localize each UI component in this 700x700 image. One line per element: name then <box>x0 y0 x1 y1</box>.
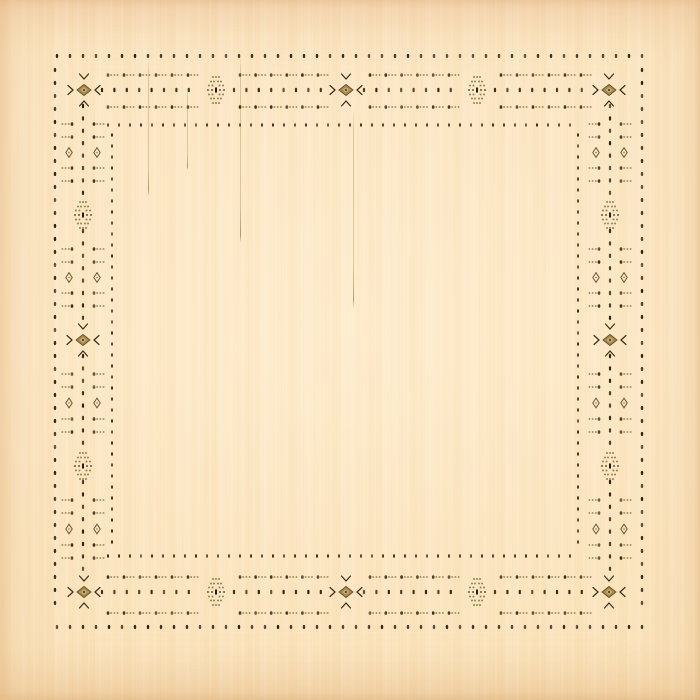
stitch <box>272 123 274 126</box>
stitch <box>123 611 126 615</box>
stitch <box>142 74 144 76</box>
stitch <box>641 549 643 553</box>
stitch <box>283 590 285 594</box>
stitch <box>68 544 70 546</box>
stitch <box>605 465 607 467</box>
stitch <box>558 74 560 76</box>
stitch <box>592 386 594 388</box>
stitch <box>595 152 596 153</box>
stitch <box>54 315 56 319</box>
stitch <box>103 180 105 182</box>
stitch <box>451 612 453 614</box>
stitch <box>301 105 304 109</box>
stitch <box>595 180 597 182</box>
stitch <box>215 102 217 104</box>
stitch <box>404 106 406 108</box>
stitch <box>117 106 119 108</box>
stitch <box>616 461 618 463</box>
stitch <box>305 554 307 557</box>
stitch <box>138 590 140 594</box>
stitch <box>623 544 625 546</box>
stitch <box>187 73 190 77</box>
stitch <box>187 105 190 109</box>
stitch <box>316 625 318 629</box>
stitch <box>123 73 126 77</box>
stitch <box>506 106 508 108</box>
stitch <box>368 625 370 629</box>
stitch <box>468 591 470 593</box>
stitch <box>190 576 192 578</box>
stitch <box>641 458 643 462</box>
stitch <box>522 576 524 578</box>
stitch <box>151 123 153 126</box>
stitch <box>626 167 628 169</box>
stitch <box>161 74 163 76</box>
stitch <box>264 106 266 108</box>
stitch <box>65 512 67 514</box>
stitch <box>68 402 69 403</box>
stitch <box>558 576 560 578</box>
stitch <box>580 575 583 579</box>
stitch <box>96 499 98 501</box>
stitch <box>630 499 632 501</box>
stitch <box>113 590 115 594</box>
stitch <box>258 590 260 594</box>
stitch <box>71 556 74 560</box>
stitch <box>111 419 113 422</box>
stitch <box>590 106 592 108</box>
stitch <box>592 418 594 420</box>
stitch <box>641 172 643 176</box>
stitch <box>220 81 222 83</box>
stitch <box>588 418 590 420</box>
stitch <box>103 544 105 546</box>
stitch <box>270 575 273 579</box>
stitch <box>407 74 409 76</box>
stitch <box>641 562 643 566</box>
stitch <box>416 611 419 615</box>
stitch <box>641 54 643 58</box>
stitch <box>595 373 597 375</box>
stitch <box>473 94 475 96</box>
stitch <box>99 123 101 125</box>
stitch <box>82 505 84 509</box>
stitch <box>510 74 512 76</box>
stitch <box>522 74 524 76</box>
stitch <box>577 232 579 235</box>
stitch <box>162 554 164 557</box>
stitch <box>626 248 628 250</box>
stitch <box>82 428 84 432</box>
stitch <box>542 612 544 614</box>
stitch <box>400 575 403 579</box>
stitch <box>577 397 579 400</box>
stitch <box>99 373 101 375</box>
stitch <box>474 583 476 585</box>
stitch <box>577 419 579 422</box>
stitch <box>80 474 82 476</box>
stitch <box>595 528 596 529</box>
stitch <box>301 611 304 615</box>
stitch <box>474 98 476 100</box>
stitch <box>96 167 98 169</box>
stitch <box>99 512 101 514</box>
stitch <box>641 198 643 202</box>
stitch <box>103 499 105 501</box>
stitch <box>54 393 56 397</box>
stitch <box>82 478 84 480</box>
stitch <box>84 474 86 476</box>
stitch <box>133 106 135 108</box>
stitch <box>111 254 113 257</box>
stitch <box>612 227 614 229</box>
stitch <box>264 625 266 629</box>
stitch <box>437 123 439 126</box>
stitch <box>54 328 56 332</box>
stitch <box>360 123 362 126</box>
stitch <box>107 575 110 579</box>
stitch <box>609 254 611 258</box>
stitch <box>163 88 165 92</box>
stitch <box>602 470 604 472</box>
stitch <box>388 88 390 92</box>
stitch <box>111 430 113 433</box>
stitch <box>320 576 322 578</box>
stitch <box>626 499 628 501</box>
stitch <box>448 73 451 77</box>
stitch <box>519 590 521 594</box>
stitch <box>218 604 220 606</box>
stitch <box>598 166 601 170</box>
stitch <box>628 625 630 629</box>
stitch <box>609 227 611 229</box>
stitch <box>251 625 253 629</box>
stitch <box>111 232 113 235</box>
stitch <box>129 612 131 614</box>
stitch <box>641 625 643 629</box>
stitch <box>548 105 551 109</box>
stitch <box>108 625 110 629</box>
stitch <box>641 393 643 397</box>
stitch <box>526 106 528 108</box>
stitch <box>327 554 329 557</box>
stitch <box>65 136 67 138</box>
stitch <box>630 167 632 169</box>
stitch <box>558 106 560 108</box>
stitch <box>532 105 535 109</box>
stitch <box>79 227 81 229</box>
stitch <box>303 54 305 58</box>
stitch <box>459 123 461 126</box>
stitch <box>609 428 611 432</box>
stitch <box>54 341 56 345</box>
stitch <box>68 512 70 514</box>
stitch <box>583 576 585 578</box>
stitch <box>283 88 285 92</box>
stitch <box>82 104 84 108</box>
stitch <box>577 166 579 169</box>
stitch <box>199 625 201 629</box>
stitch <box>615 625 617 629</box>
stitch <box>54 263 56 267</box>
stitch <box>165 74 167 76</box>
stitch <box>171 73 174 77</box>
stitch <box>54 289 56 293</box>
stitch <box>79 324 88 329</box>
stitch <box>607 223 609 225</box>
stitch <box>165 576 167 578</box>
stitch <box>111 474 113 477</box>
stitch <box>407 106 409 108</box>
stitch <box>413 590 415 594</box>
stitch <box>581 88 583 92</box>
stitch <box>593 588 598 597</box>
stitch <box>577 243 579 246</box>
stitch <box>117 576 119 578</box>
stitch <box>103 261 105 263</box>
stitch <box>416 575 419 579</box>
stitch <box>641 406 643 410</box>
stitch <box>68 588 73 597</box>
stitch <box>592 180 594 182</box>
stitch <box>280 576 282 578</box>
embroidered-border-pattern <box>0 0 700 700</box>
stitch <box>577 452 579 455</box>
stitch <box>65 499 67 501</box>
stitch <box>84 206 86 208</box>
stitch <box>85 478 87 480</box>
stitch <box>503 576 505 578</box>
stitch <box>113 74 115 76</box>
stitch <box>283 554 285 557</box>
stitch <box>536 554 538 557</box>
stitch <box>61 167 63 169</box>
stitch <box>471 81 473 83</box>
stitch <box>68 499 70 501</box>
stitch <box>454 106 456 108</box>
stitch <box>588 499 590 501</box>
stitch <box>577 144 579 147</box>
stitch <box>506 612 508 614</box>
stitch <box>111 298 113 301</box>
stitch <box>61 418 63 420</box>
stitch <box>111 463 113 466</box>
stitch <box>117 74 119 76</box>
stitch <box>609 291 611 295</box>
stitch <box>99 386 101 388</box>
stitch <box>611 474 613 476</box>
stitch <box>598 179 601 183</box>
stitch <box>391 612 393 614</box>
stitch <box>606 452 608 454</box>
stitch <box>473 76 475 78</box>
stitch <box>289 612 291 614</box>
stitch <box>212 85 214 87</box>
stitch <box>442 74 444 76</box>
stitch <box>54 159 56 163</box>
stitch <box>542 106 544 108</box>
stitch <box>577 188 579 191</box>
stitch <box>420 625 422 629</box>
stitch <box>577 386 579 389</box>
stitch <box>609 104 611 108</box>
stitch <box>54 523 56 527</box>
stitch <box>404 123 406 126</box>
stitch <box>577 474 579 477</box>
stitch <box>586 612 588 614</box>
stitch <box>476 76 478 78</box>
stitch <box>623 123 625 125</box>
stitch <box>75 210 77 212</box>
stitch <box>413 88 415 92</box>
stitch <box>79 461 81 463</box>
stitch <box>630 305 632 307</box>
stitch <box>537 625 539 629</box>
stitch <box>96 305 98 307</box>
stitch <box>82 567 84 571</box>
stitch <box>177 74 179 76</box>
stitch <box>556 590 558 594</box>
stitch <box>111 342 113 345</box>
stitch <box>85 201 87 203</box>
stitch <box>602 461 604 463</box>
stitch <box>588 544 590 546</box>
stitch <box>609 554 611 558</box>
stitch <box>75 461 77 463</box>
stitch <box>54 302 56 306</box>
stitch <box>519 576 521 578</box>
stitch <box>355 625 357 629</box>
stitch <box>111 441 113 444</box>
stitch <box>609 229 611 233</box>
stitch <box>258 74 260 76</box>
stitch <box>219 596 221 598</box>
stitch <box>99 248 101 250</box>
stitch <box>99 418 101 420</box>
stitch <box>548 611 551 615</box>
stitch <box>588 167 590 169</box>
stitch <box>212 604 214 606</box>
stitch <box>606 210 608 212</box>
stitch <box>483 85 485 87</box>
stitch <box>598 385 601 389</box>
stitch <box>595 386 597 388</box>
stitch <box>469 85 471 87</box>
stitch <box>595 167 597 169</box>
stitch <box>630 180 632 182</box>
stitch <box>598 498 601 502</box>
stitch <box>111 331 113 334</box>
stitch <box>222 596 224 598</box>
stitch <box>342 54 344 58</box>
stitch <box>506 590 508 594</box>
stitch <box>423 106 425 108</box>
stitch <box>478 81 480 83</box>
stitch <box>612 452 614 454</box>
stitch <box>595 544 597 546</box>
stitch <box>286 105 289 109</box>
stitch <box>295 88 297 92</box>
stitch <box>641 276 643 280</box>
stitch <box>317 575 320 579</box>
stitch <box>400 105 403 109</box>
stitch <box>71 179 74 183</box>
stitch <box>459 625 461 629</box>
stitch <box>219 85 221 87</box>
stitch <box>641 107 643 111</box>
stitch <box>598 511 601 515</box>
stitch <box>568 88 570 92</box>
stitch <box>372 106 374 108</box>
stitch <box>595 512 597 514</box>
stitch <box>217 98 219 100</box>
stitch <box>623 418 625 420</box>
stitch <box>593 86 598 95</box>
stitch <box>273 106 275 108</box>
stitch <box>327 576 329 578</box>
stitch <box>80 206 82 208</box>
stitch <box>80 576 89 581</box>
stitch <box>80 603 89 608</box>
stitch <box>218 102 220 104</box>
stitch <box>245 88 247 92</box>
stitch <box>570 612 572 614</box>
stitch <box>588 123 590 125</box>
stitch <box>96 152 97 153</box>
stitch <box>111 320 113 323</box>
stitch <box>407 625 409 629</box>
stitch <box>103 512 105 514</box>
stitch <box>103 418 105 420</box>
stitch <box>197 74 199 76</box>
stitch <box>614 474 616 476</box>
stitch <box>511 625 513 629</box>
stitch <box>595 402 596 403</box>
stitch <box>476 604 478 606</box>
stitch <box>217 554 219 557</box>
stitch <box>96 136 98 138</box>
stitch <box>372 576 374 578</box>
stitch <box>511 54 513 58</box>
stitch <box>68 86 73 95</box>
stitch <box>410 576 412 578</box>
stitch <box>592 305 594 307</box>
stitch <box>207 591 209 593</box>
stitch <box>65 386 67 388</box>
stitch <box>400 73 403 77</box>
stitch <box>473 604 475 606</box>
stitch <box>349 554 351 557</box>
stitch <box>145 106 147 108</box>
stitch <box>532 575 535 579</box>
stitch <box>295 576 297 578</box>
stitch <box>75 219 77 221</box>
stitch <box>270 105 273 109</box>
stitch <box>602 210 604 212</box>
stitch <box>604 457 606 459</box>
stitch <box>79 470 81 472</box>
stitch <box>598 304 601 308</box>
stitch <box>535 576 537 578</box>
stitch <box>623 528 624 529</box>
stitch <box>173 625 175 629</box>
stitch <box>54 575 56 579</box>
stitch <box>551 106 553 108</box>
stitch <box>99 431 101 433</box>
stitch <box>519 106 521 108</box>
stitch <box>598 430 601 434</box>
stitch <box>217 583 219 585</box>
